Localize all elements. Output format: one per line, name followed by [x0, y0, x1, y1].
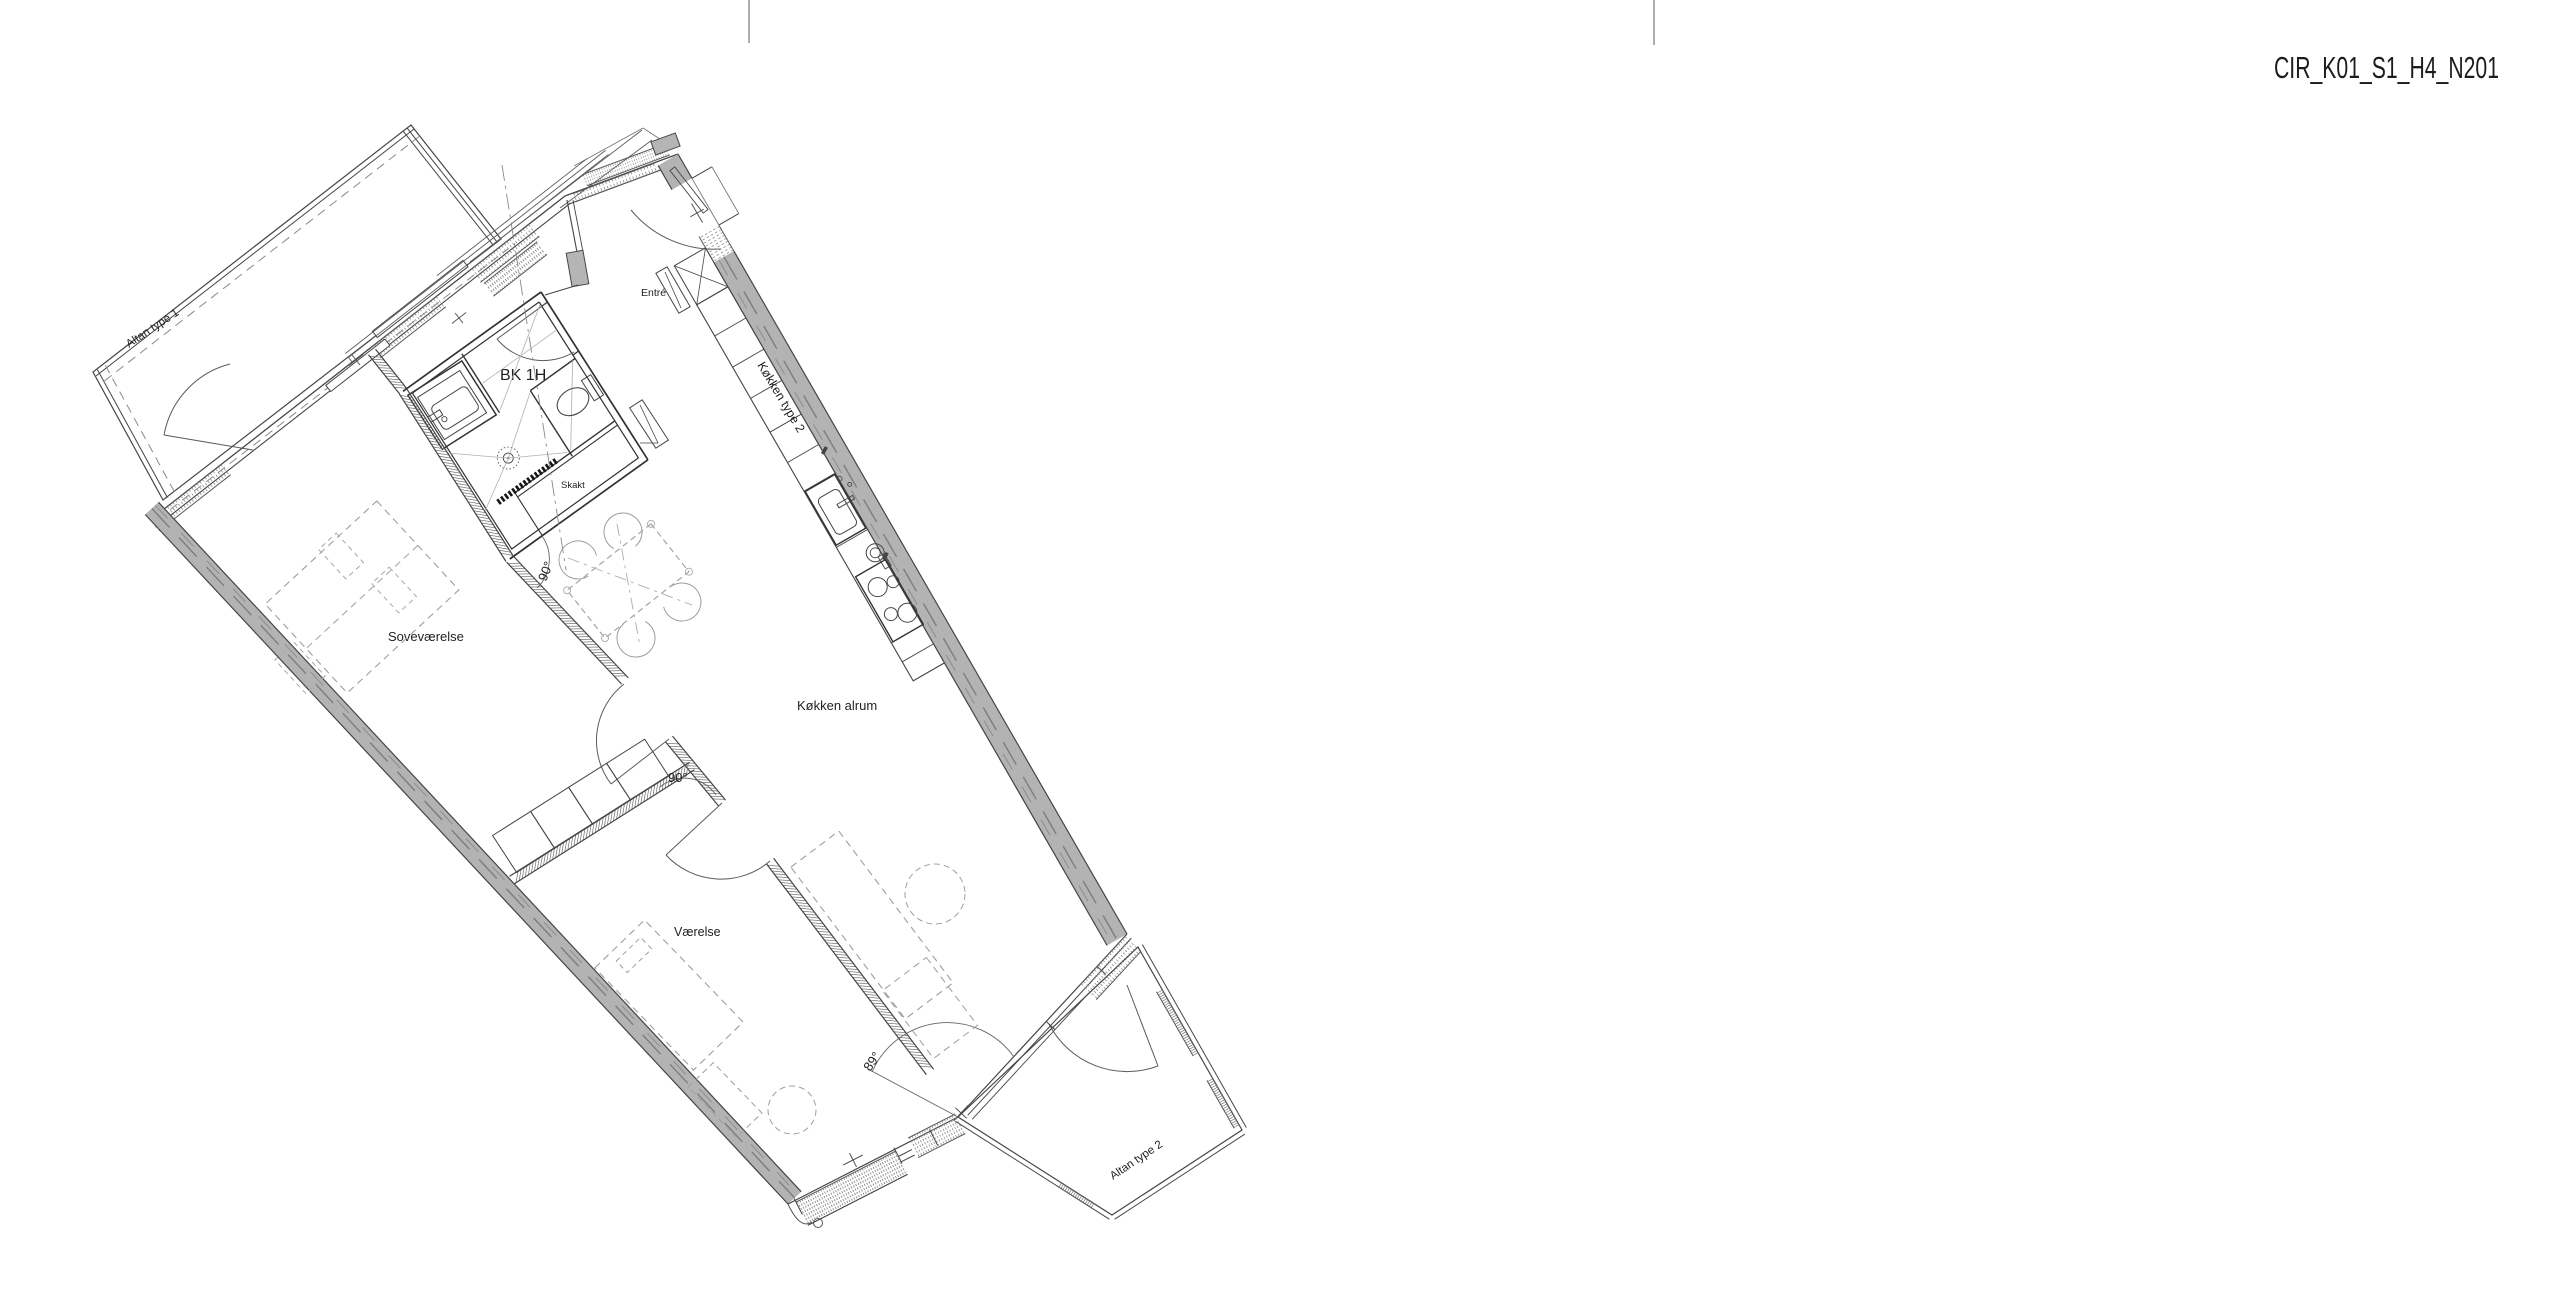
svg-text:Værelse: Værelse: [674, 925, 721, 939]
svg-text:CIR_K01_S1_H4_N201: CIR_K01_S1_H4_N201: [2274, 50, 2499, 85]
svg-text:BK 1H: BK 1H: [500, 367, 546, 384]
svg-text:Køkken alrum: Køkken alrum: [797, 698, 877, 713]
svg-text:Skakt: Skakt: [561, 480, 585, 491]
svg-text:Soveværelse: Soveværelse: [388, 629, 464, 644]
svg-text:90°: 90°: [668, 770, 688, 785]
svg-text:Entré: Entré: [641, 287, 666, 299]
